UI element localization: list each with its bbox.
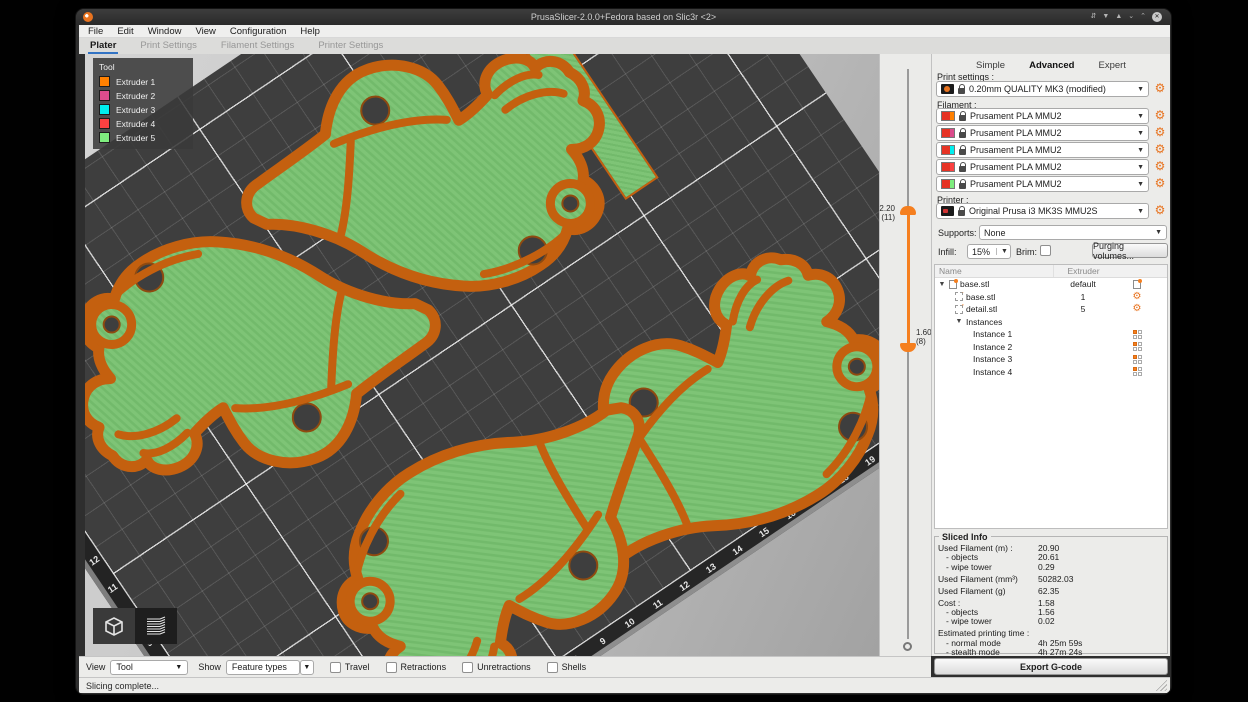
tab-printer-settings[interactable]: Printer Settings <box>316 38 385 54</box>
print-settings-value: 0.20mm QUALITY MK3 (modified) <box>969 84 1106 94</box>
extruder4-swatch <box>99 118 110 129</box>
view-value: Tool <box>116 662 133 672</box>
object-list-header: Name Extruder <box>935 265 1167 278</box>
mode-selector: Simple Advanced Expert <box>932 60 1170 71</box>
unretractions-checkbox-group: Unretractions <box>462 662 531 673</box>
layer-slider-range[interactable] <box>907 214 910 343</box>
travel-checkbox-group: Travel <box>330 662 370 673</box>
app-window: PrusaSlicer-2.0.0+Fedora based on Slic3r… <box>75 8 1172 695</box>
filament-combo-1[interactable]: Prusament PLA MMU2 ▼ <box>936 108 1149 124</box>
legend-row: Extruder 4 <box>99 118 187 129</box>
instance-grid-icon[interactable] <box>1133 367 1142 376</box>
brim-checkbox[interactable] <box>1040 245 1051 256</box>
shade-window-icon[interactable]: ⇵ <box>1091 12 1097 22</box>
retractions-checkbox[interactable] <box>386 662 397 673</box>
extruder-value[interactable]: 1 <box>1053 292 1113 302</box>
print-preset-icon <box>941 84 954 94</box>
tool-legend: Tool Extruder 1 Extruder 2 Extruder 3 Ex… <box>93 58 193 149</box>
printer-combo[interactable]: Original Prusa i3 MK3S MMU2S ▼ <box>936 203 1149 219</box>
chevron-down-icon: ▼ <box>1137 208 1144 215</box>
view-combo[interactable]: Tool ▼ <box>110 660 188 675</box>
sliced-info-row: - wipe tower0.02 <box>938 617 1164 626</box>
tab-print-settings[interactable]: Print Settings <box>138 38 199 54</box>
legend-label: Extruder 2 <box>116 91 155 101</box>
preview-toolbar: View Tool ▼ Show Feature types ▼ Travel … <box>79 656 931 677</box>
3d-editor-view-button[interactable] <box>93 608 135 644</box>
printer-preset-icon <box>941 206 954 216</box>
chevron-down-icon: ▼ <box>1137 130 1144 137</box>
instance-row[interactable]: Instance 4 <box>935 366 1167 379</box>
legend-label: Extruder 3 <box>116 105 155 115</box>
supports-combo[interactable]: None ▼ <box>979 225 1167 240</box>
retractions-label: Retractions <box>401 662 447 672</box>
filament-gear-button-5[interactable]: ⚙ <box>1153 177 1167 191</box>
object-list: Name Extruder ▼ base.stl default base.st… <box>934 264 1168 529</box>
menu-edit[interactable]: Edit <box>117 26 133 37</box>
menu-configuration[interactable]: Configuration <box>230 26 287 37</box>
legend-row: Extruder 2 <box>99 90 187 101</box>
shells-label: Shells <box>562 662 587 672</box>
filament-combo-3[interactable]: Prusament PLA MMU2 ▼ <box>936 142 1149 158</box>
sliced-info-panel: Sliced Info Used Filament (m) :20.90 - o… <box>934 536 1168 654</box>
lock-icon <box>959 166 966 172</box>
filament-gear-button-3[interactable]: ⚙ <box>1153 143 1167 157</box>
statusbar: Slicing complete... <box>79 677 1170 693</box>
mode-expert[interactable]: Expert <box>1098 60 1125 71</box>
sliced-info-row: - wipe tower0.29 <box>938 563 1164 572</box>
infill-combo[interactable]: 15% ▼ <box>967 244 1011 259</box>
instances-group-row[interactable]: ▼ Instances <box>935 316 1167 329</box>
filament-color-swatch <box>941 162 955 172</box>
instance-row[interactable]: Instance 3 <box>935 353 1167 366</box>
chevron-down-icon: ▼ <box>1137 147 1144 154</box>
extruder1-swatch <box>99 76 110 87</box>
instance-row[interactable]: Instance 1 <box>935 328 1167 341</box>
extruder5-swatch <box>99 132 110 143</box>
menu-file[interactable]: File <box>88 26 103 37</box>
travel-checkbox[interactable] <box>330 662 341 673</box>
filament-value: Prusament PLA MMU2 <box>970 179 1062 189</box>
extruder-value[interactable]: default <box>1053 279 1113 289</box>
chevron-down-icon: ▼ <box>1137 181 1144 188</box>
bed-edge-number: 12 <box>87 554 101 568</box>
legend-row: Extruder 5 <box>99 132 187 143</box>
layers-icon <box>143 615 169 637</box>
lock-icon <box>959 183 966 189</box>
view-label: View <box>86 662 105 672</box>
settings-panel: Simple Advanced Expert Print settings : … <box>931 54 1170 656</box>
lock-icon <box>958 88 965 94</box>
lock-icon <box>959 115 966 121</box>
sliced-info-row: Used Filament (g)62.35 <box>938 587 1164 596</box>
preview-view-button[interactable] <box>135 608 177 644</box>
column-extruder[interactable]: Extruder <box>1053 265 1113 277</box>
expander-icon[interactable]: ▼ <box>938 281 946 288</box>
part-settings-gear-icon[interactable]: ⚙ <box>1133 304 1142 314</box>
menu-help[interactable]: Help <box>300 26 320 37</box>
maximize-icon[interactable]: ⌃ <box>1140 12 1146 22</box>
chevron-down-icon: ▼ <box>1155 229 1162 236</box>
instance-row[interactable]: Instance 2 <box>935 341 1167 354</box>
layer-slider-lower-handle[interactable] <box>900 343 916 352</box>
part-icon <box>955 292 963 301</box>
upper-layer-label: 2.20 (11) <box>879 204 895 222</box>
part-row[interactable]: detail.stl 5 ⚙ <box>935 303 1167 316</box>
object-settings-icon[interactable] <box>1133 280 1141 289</box>
supports-value: None <box>984 228 1006 238</box>
chevron-down-icon: ▼ <box>1137 164 1144 171</box>
legend-label: Extruder 5 <box>116 133 155 143</box>
tab-plater[interactable]: Plater <box>88 38 118 54</box>
minimize-icon[interactable]: ⌄ <box>1128 12 1134 22</box>
layer-slider-track[interactable] <box>907 69 909 639</box>
menu-window[interactable]: Window <box>148 26 182 37</box>
lower-layer-label: 1.60 (8) <box>916 328 932 346</box>
filament-gear-button-4[interactable]: ⚙ <box>1153 160 1167 174</box>
close-icon[interactable]: ✕ <box>1152 12 1162 22</box>
part-icon <box>955 305 963 314</box>
lock-icon <box>959 149 966 155</box>
part-row[interactable]: base.stl 1 ⚙ <box>935 291 1167 304</box>
legend-row: Extruder 1 <box>99 76 187 87</box>
stick-window-icon[interactable]: ▼ <box>1102 12 1109 22</box>
chevron-down-icon: ▼ <box>303 664 310 671</box>
menu-view[interactable]: View <box>195 26 215 37</box>
lock-icon <box>959 132 966 138</box>
filament-combo-5[interactable]: Prusament PLA MMU2 ▼ <box>936 176 1149 192</box>
sliced-info-title: Sliced Info <box>939 532 991 542</box>
print-settings-combo[interactable]: 0.20mm QUALITY MK3 (modified) ▼ <box>936 81 1149 97</box>
mode-advanced[interactable]: Advanced <box>1029 60 1074 71</box>
view-mode-buttons <box>93 608 177 644</box>
legend-label: Extruder 1 <box>116 77 155 87</box>
printer-gear-button[interactable]: ⚙ <box>1153 204 1167 218</box>
show-value: Feature types <box>232 662 287 672</box>
chevron-down-icon: ▼ <box>996 248 1008 255</box>
travel-label: Travel <box>345 662 370 672</box>
bed-edge-number: 9 <box>598 636 608 647</box>
extruder-value[interactable]: 5 <box>1053 304 1113 314</box>
show-combo-arrow-button[interactable]: ▼ <box>300 660 314 675</box>
filament-value: Prusament PLA MMU2 <box>970 111 1062 121</box>
print-settings-gear-button[interactable]: ⚙ <box>1153 82 1167 96</box>
status-text: Slicing complete... <box>86 681 159 691</box>
instance-grid-icon[interactable] <box>1133 355 1142 364</box>
purging-volumes-button[interactable]: Purging volumes... <box>1092 243 1168 258</box>
legend-title: Tool <box>99 62 187 72</box>
shells-checkbox-group: Shells <box>547 662 587 673</box>
object-row[interactable]: ▼ base.stl default <box>935 278 1167 291</box>
lock-icon <box>958 210 965 216</box>
layer-slider-column: 2.20 (11) 1.60 (8) <box>879 54 931 656</box>
expander-icon[interactable]: ▼ <box>955 318 963 325</box>
layer-slider-upper-handle[interactable] <box>900 206 916 215</box>
legend-label: Extruder 4 <box>116 119 155 129</box>
part-settings-gear-icon[interactable]: ⚙ <box>1133 292 1142 302</box>
object-icon <box>949 280 957 289</box>
legend-row: Extruder 3 <box>99 104 187 115</box>
column-name[interactable]: Name <box>935 266 1053 276</box>
resize-grip[interactable] <box>1153 678 1167 691</box>
filament-value: Prusament PLA MMU2 <box>970 162 1062 172</box>
instance-grid-icon[interactable] <box>1133 342 1142 351</box>
window-title: PrusaSlicer-2.0.0+Fedora based on Slic3r… <box>76 12 1171 22</box>
sliced-info-row: Used Filament (mm³)50282.03 <box>938 575 1164 584</box>
titlebar[interactable]: PrusaSlicer-2.0.0+Fedora based on Slic3r… <box>76 9 1171 25</box>
instance-grid-icon[interactable] <box>1133 330 1142 339</box>
filament-gear-button-1[interactable]: ⚙ <box>1153 109 1167 123</box>
extruder2-swatch <box>99 90 110 101</box>
filament-color-swatch <box>941 128 955 138</box>
unretractions-checkbox[interactable] <box>462 662 473 673</box>
show-label: Show <box>198 662 221 672</box>
filament-color-swatch <box>941 111 955 121</box>
cube-icon <box>101 615 127 637</box>
filament-combo-2[interactable]: Prusament PLA MMU2 ▼ <box>936 125 1149 141</box>
filament-value: Prusament PLA MMU2 <box>970 128 1062 138</box>
filament-gear-button-2[interactable]: ⚙ <box>1153 126 1167 140</box>
menubar: File Edit Window View Configuration Help <box>79 25 1170 38</box>
printer-value: Original Prusa i3 MK3S MMU2S <box>969 206 1098 216</box>
bed-edge-number: 11 <box>106 581 119 595</box>
window-controls: ⇵ ▼ ▲ ⌄ ⌃ ✕ <box>1091 11 1163 23</box>
chevron-down-icon: ▼ <box>1137 86 1144 93</box>
extruder3-swatch <box>99 104 110 115</box>
tabbar: Plater Print Settings Filament Settings … <box>79 38 1170 54</box>
filament-color-swatch <box>941 145 955 155</box>
tab-filament-settings[interactable]: Filament Settings <box>219 38 296 54</box>
retractions-checkbox-group: Retractions <box>386 662 447 673</box>
show-combo[interactable]: Feature types <box>226 660 300 675</box>
sliced-info-row: - stealth mode4h 27m 24s <box>938 648 1164 657</box>
shells-checkbox[interactable] <box>547 662 558 673</box>
export-gcode-button[interactable]: Export G-code <box>934 658 1168 675</box>
supports-label: Supports: <box>938 228 977 238</box>
mode-simple[interactable]: Simple <box>976 60 1005 71</box>
chevron-down-icon: ▼ <box>1137 113 1144 120</box>
filament-combo-4[interactable]: Prusament PLA MMU2 ▼ <box>936 159 1149 175</box>
filament-value: Prusament PLA MMU2 <box>970 145 1062 155</box>
3d-viewport[interactable]: ORIGINAL PRUSA 8 9 10 11 12 13 14 15 16 … <box>85 54 879 656</box>
slider-lock-icon[interactable] <box>903 642 912 651</box>
infill-value: 15% <box>972 247 990 257</box>
chevron-down-icon: ▼ <box>175 664 182 671</box>
infill-label: Infill: <box>938 247 957 257</box>
filament-color-swatch <box>941 179 955 189</box>
unretractions-label: Unretractions <box>477 662 531 672</box>
brim-label: Brim: <box>1016 247 1037 257</box>
raise-window-icon[interactable]: ▲ <box>1115 12 1122 22</box>
